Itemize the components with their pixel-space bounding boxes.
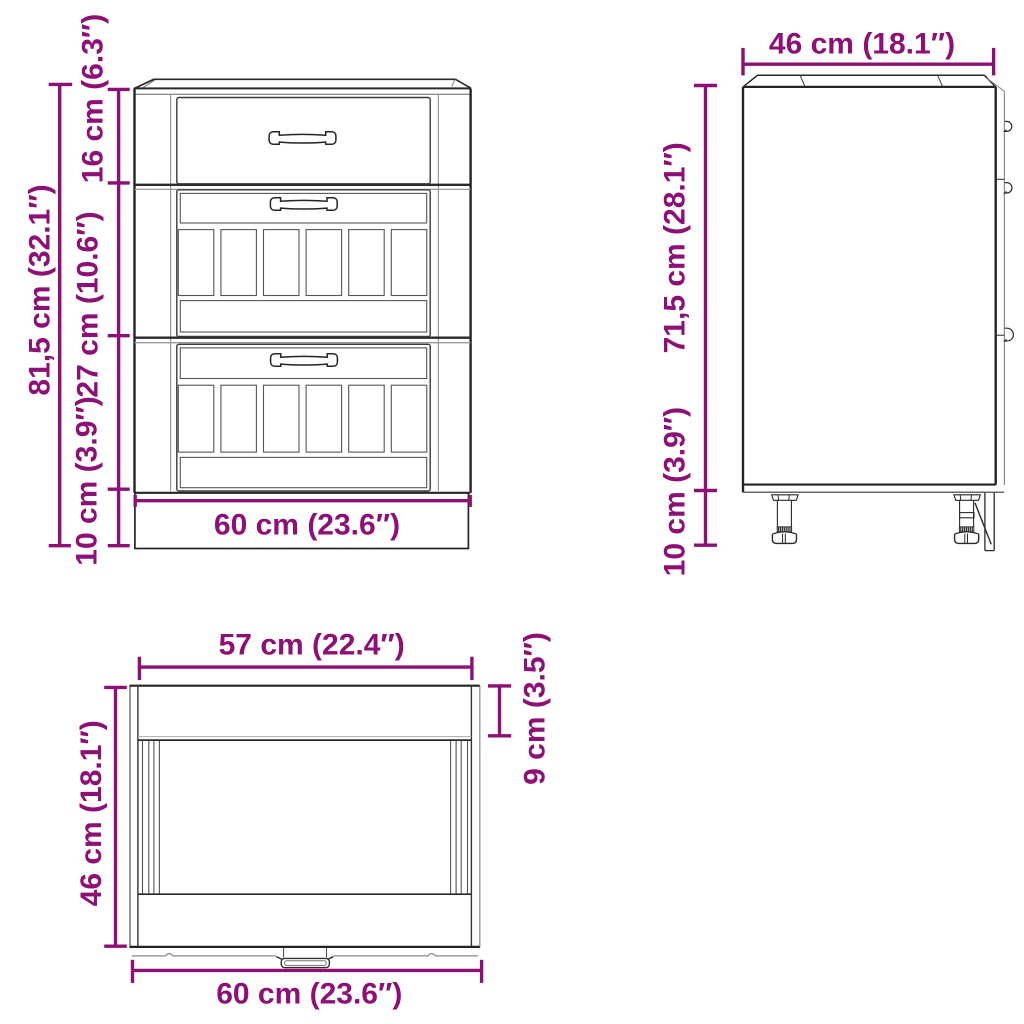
svg-text:60 cm (23.6″): 60 cm (23.6″) bbox=[216, 977, 402, 1010]
svg-text:10 cm (3.9″): 10 cm (3.9″) bbox=[659, 407, 692, 576]
svg-text:46 cm (18.1″): 46 cm (18.1″) bbox=[769, 28, 955, 61]
svg-text:46 cm (18.1″): 46 cm (18.1″) bbox=[75, 720, 108, 906]
svg-text:27 cm (10.6″): 27 cm (10.6″) bbox=[72, 211, 105, 397]
svg-text:60 cm (23.6″): 60 cm (23.6″) bbox=[214, 509, 400, 542]
svg-text:81,5 cm (32.1″): 81,5 cm (32.1″) bbox=[24, 184, 57, 395]
svg-text:57 cm (22.4″): 57 cm (22.4″) bbox=[219, 628, 405, 661]
svg-text:71,5 cm (28.1″): 71,5 cm (28.1″) bbox=[659, 142, 692, 353]
svg-text:10 cm (3.9″): 10 cm (3.9″) bbox=[71, 396, 104, 565]
svg-text:9 cm (3.5″): 9 cm (3.5″) bbox=[519, 632, 552, 785]
svg-text:16 cm (6.3″): 16 cm (6.3″) bbox=[77, 14, 110, 183]
